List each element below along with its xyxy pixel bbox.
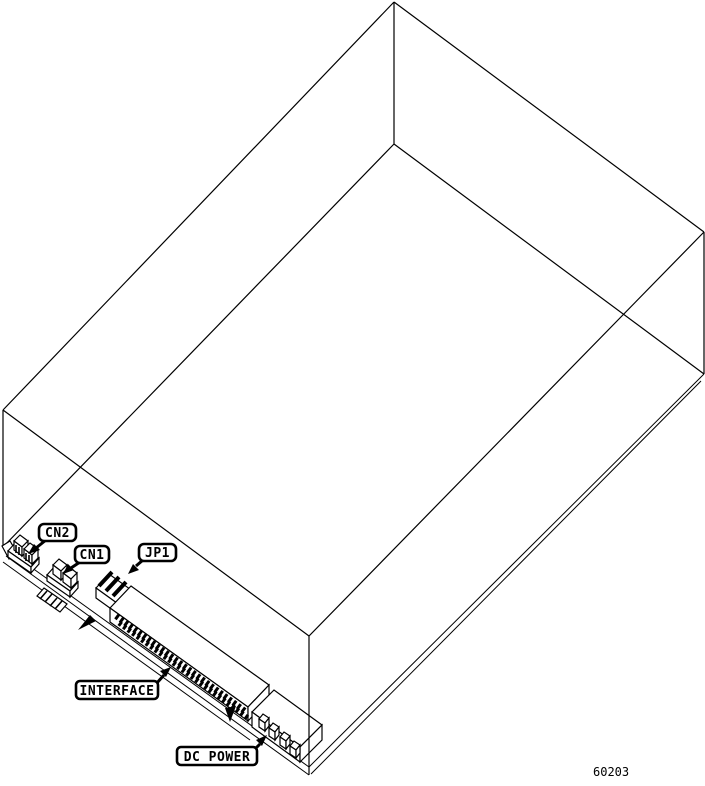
figure-canvas: CN2 CN1 JP1 INTERFACE DC POWER 60203 (0, 0, 705, 786)
chassis-top-face-edges (3, 2, 704, 636)
chassis-inner-edges (3, 2, 704, 547)
pin1-indicator-arrow-icon (78, 615, 96, 630)
chassis-wireframe (3, 2, 704, 636)
dc-power-label: DC POWER (184, 750, 251, 765)
callout-cn2: CN2 (28, 524, 76, 554)
connector-cn2 (8, 535, 39, 573)
jp1-label: JP1 (145, 546, 170, 561)
cn2-label: CN2 (45, 526, 70, 541)
diagram-page: CN2 CN1 JP1 INTERFACE DC POWER 60203 (0, 0, 705, 786)
callout-dc-power: DC POWER (177, 735, 267, 765)
callout-jp1: JP1 (128, 544, 176, 574)
callout-cn1: CN1 (63, 546, 109, 574)
figure-number: 60203 (593, 765, 629, 779)
cn1-label: CN1 (80, 548, 105, 563)
connector-interface (110, 586, 269, 721)
callout-interface: INTERFACE (76, 667, 171, 699)
interface-label: INTERFACE (80, 684, 155, 699)
pin1-indicator-arrow-2-icon (225, 706, 236, 722)
chassis-vertical-edges (3, 232, 704, 547)
connector-dc-power (252, 690, 322, 762)
